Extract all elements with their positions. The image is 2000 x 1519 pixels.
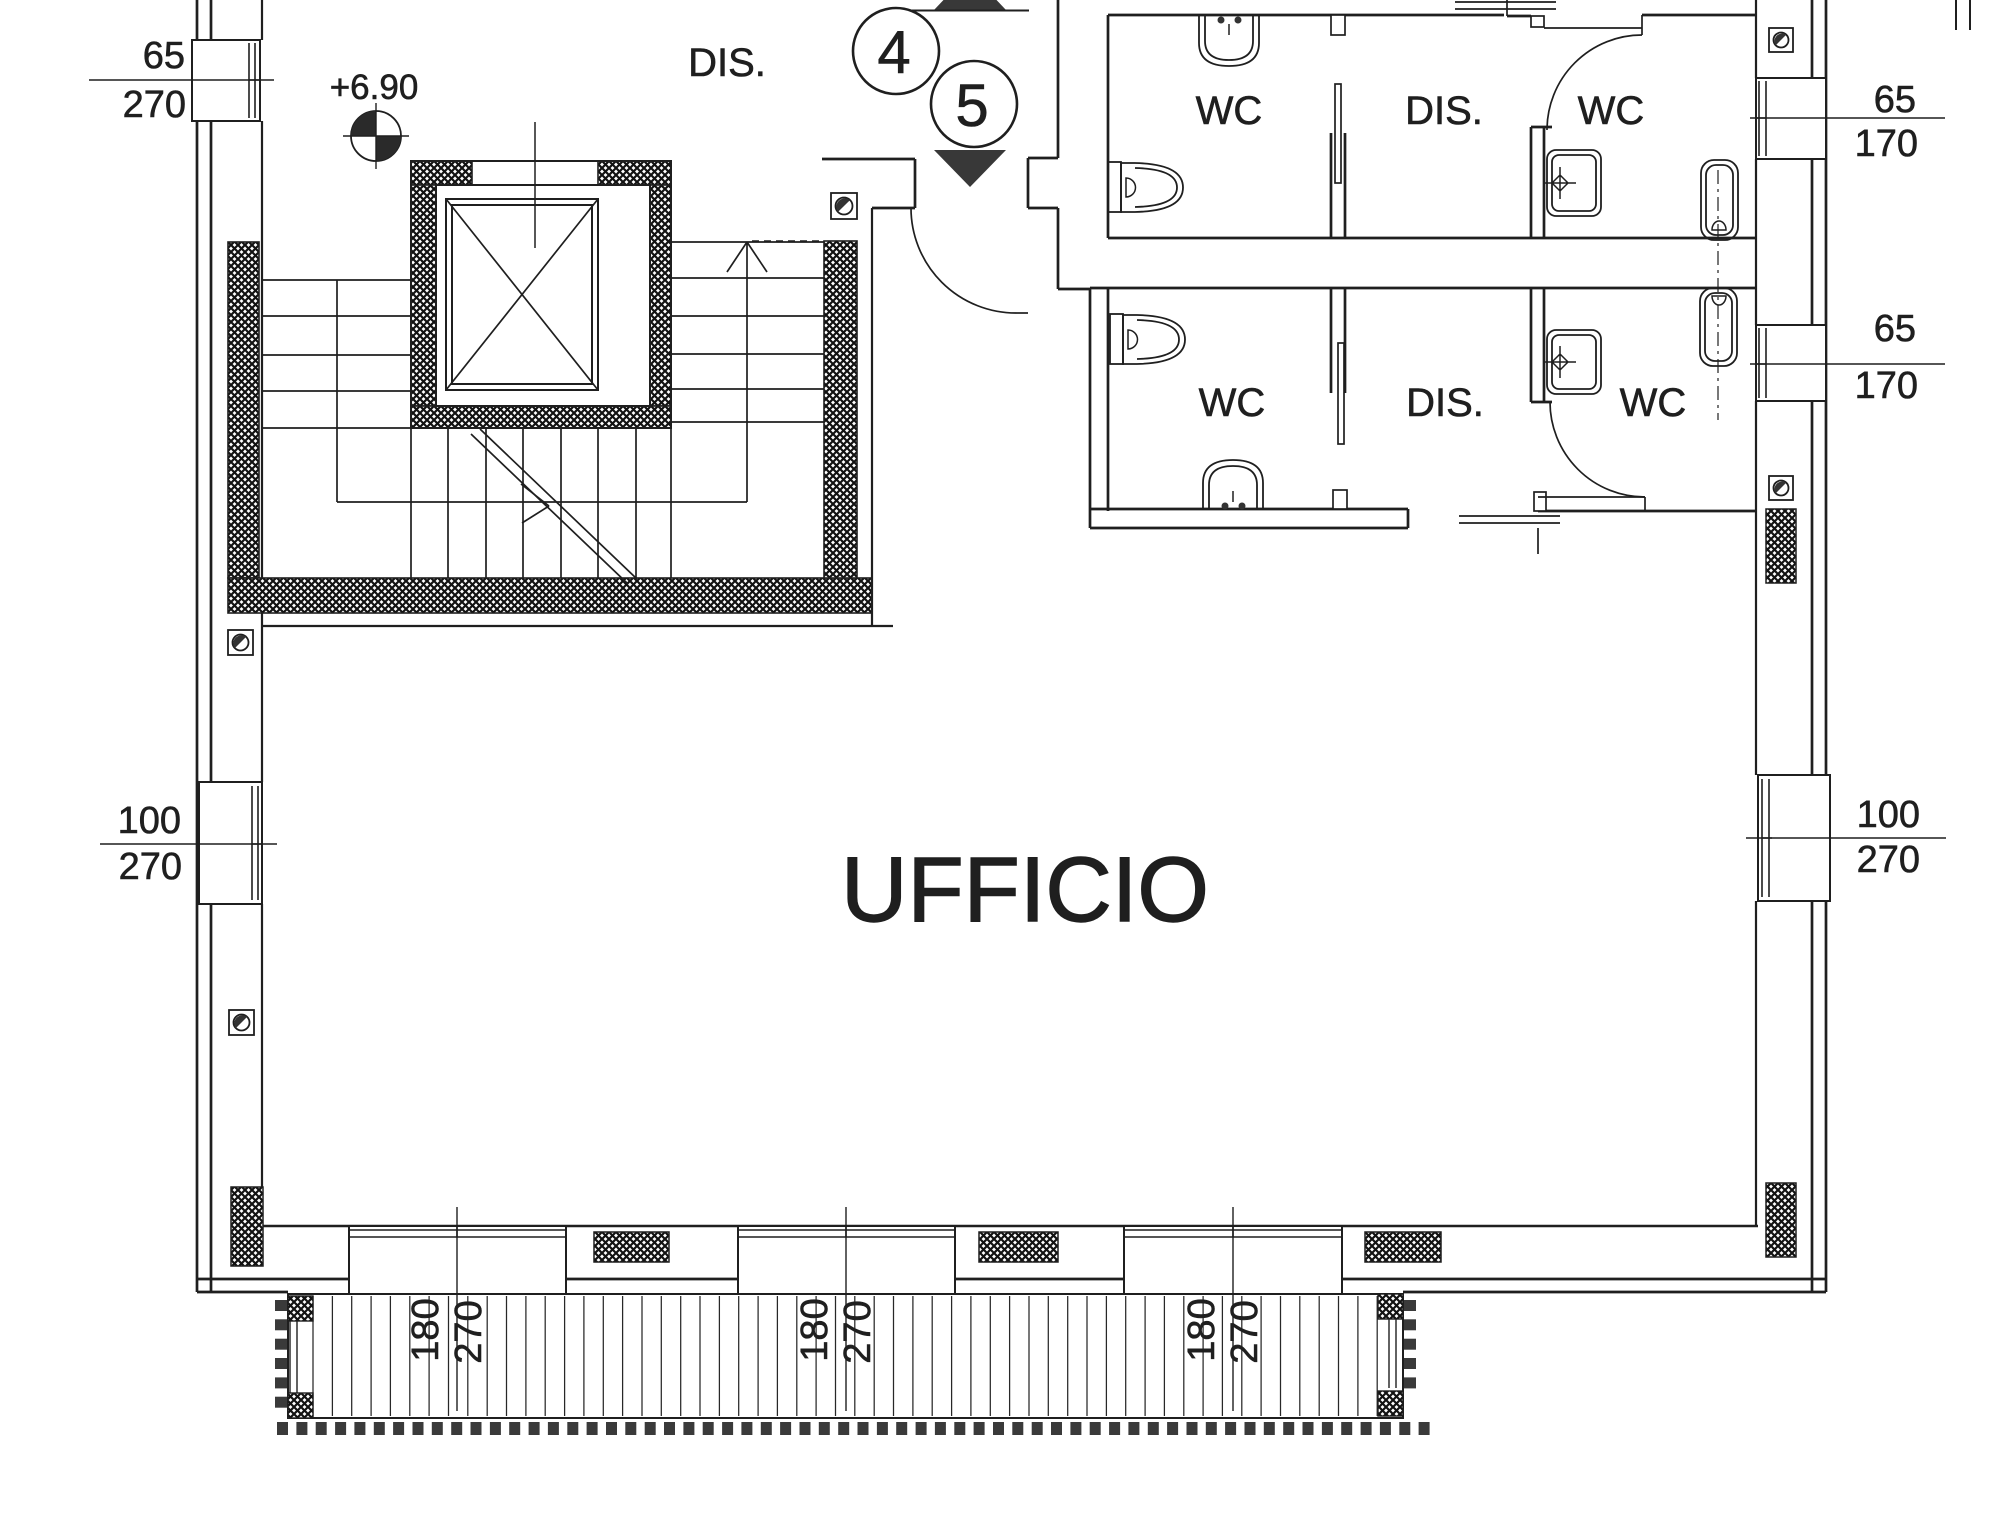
svg-text:65: 65 <box>1874 79 1916 121</box>
svg-text:170: 170 <box>1855 365 1918 407</box>
svg-text:+6.90: +6.90 <box>330 68 419 107</box>
svg-text:180: 180 <box>1181 1298 1223 1361</box>
svg-text:WC: WC <box>1199 381 1266 425</box>
svg-text:WC: WC <box>1620 381 1687 425</box>
svg-text:4: 4 <box>877 19 910 86</box>
svg-text:270: 270 <box>123 84 186 126</box>
svg-text:180: 180 <box>794 1298 836 1361</box>
svg-text:100: 100 <box>1857 794 1920 836</box>
svg-text:170: 170 <box>1855 123 1918 165</box>
svg-text:270: 270 <box>1857 839 1920 881</box>
svg-text:65: 65 <box>1874 308 1916 350</box>
svg-text:WC: WC <box>1578 89 1645 133</box>
svg-text:100: 100 <box>118 800 181 842</box>
svg-text:270: 270 <box>119 846 182 888</box>
svg-text:DIS.: DIS. <box>1405 89 1483 133</box>
svg-text:270: 270 <box>448 1300 490 1363</box>
svg-text:DIS.: DIS. <box>688 41 766 85</box>
svg-text:UFFICIO: UFFICIO <box>841 839 1209 941</box>
svg-text:65: 65 <box>143 35 185 77</box>
svg-text:180: 180 <box>405 1298 447 1361</box>
svg-text:WC: WC <box>1196 89 1263 133</box>
svg-text:DIS.: DIS. <box>1406 381 1484 425</box>
svg-text:5: 5 <box>955 72 988 139</box>
svg-text:270: 270 <box>837 1300 879 1363</box>
svg-text:270: 270 <box>1224 1300 1266 1363</box>
